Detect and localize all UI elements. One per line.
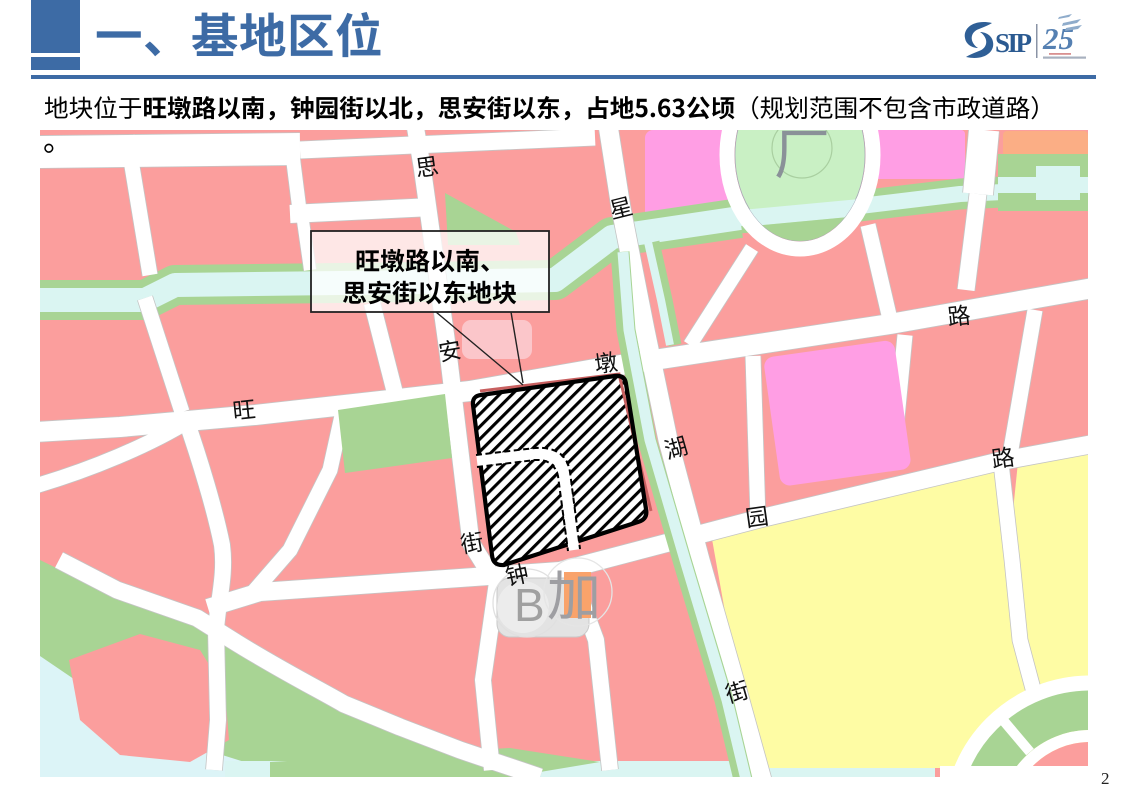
svg-text:B: B [514, 579, 545, 631]
